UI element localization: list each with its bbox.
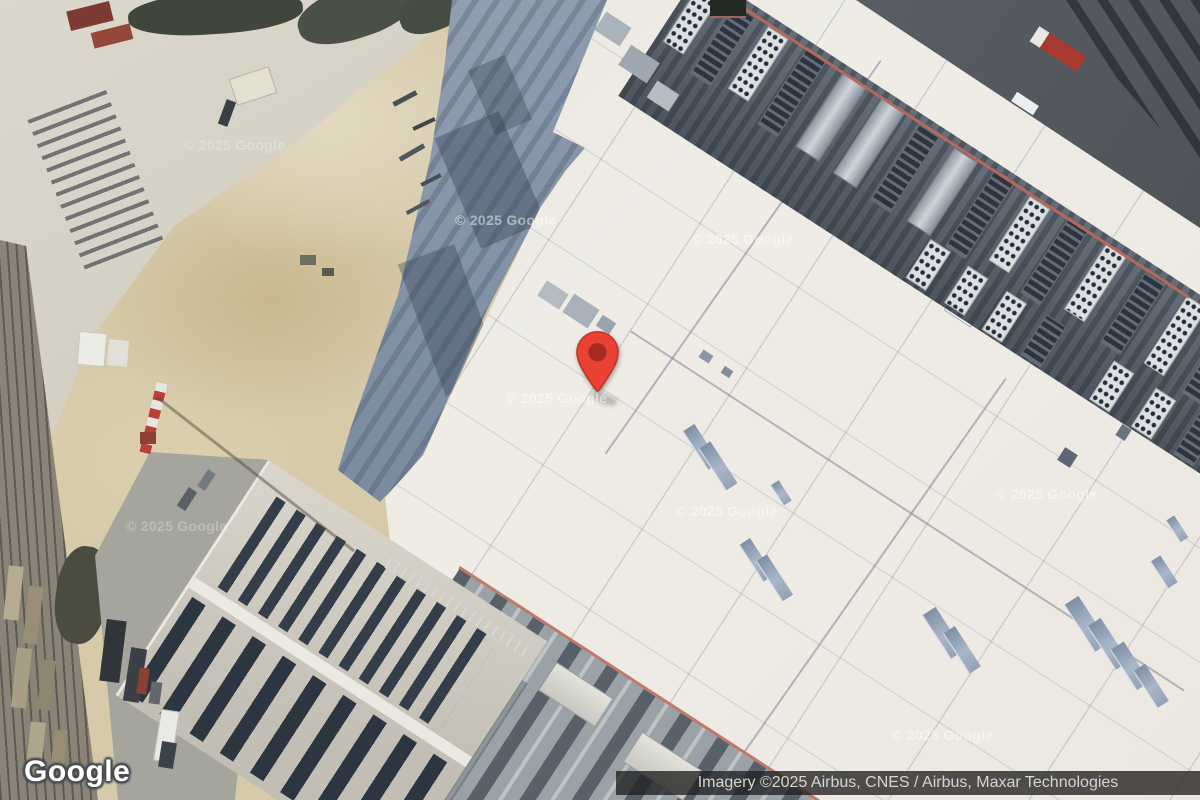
map-canvas[interactable]: © 2025 Google © 2025 Google © 2025 Googl… xyxy=(0,0,1200,800)
rebar xyxy=(399,143,426,161)
machine xyxy=(322,268,334,276)
google-watermark: © 2025 Google xyxy=(184,137,285,153)
google-watermark: © 2025 Google xyxy=(126,518,227,534)
google-watermark: © 2025 Google xyxy=(692,231,793,247)
site-trailer xyxy=(77,331,108,367)
site-trailer xyxy=(107,339,129,367)
google-watermark: © 2025 Google xyxy=(455,212,556,228)
google-watermark: © 2025 Google xyxy=(996,486,1097,502)
google-watermark: © 2025 Google xyxy=(506,390,607,406)
attribution-bar: Imagery ©2025 Airbus, CNES / Airbus, Max… xyxy=(616,771,1200,795)
site-hut xyxy=(140,432,156,444)
roof-opening xyxy=(710,0,746,18)
machine xyxy=(300,255,316,265)
attribution-text: Imagery ©2025 Airbus, CNES / Airbus, Max… xyxy=(698,774,1119,791)
google-logo[interactable]: Google xyxy=(24,755,130,789)
google-watermark: © 2025 Google xyxy=(892,727,993,743)
rebar xyxy=(392,90,417,107)
google-watermark: © 2025 Google xyxy=(676,503,777,519)
rebar xyxy=(412,117,435,131)
